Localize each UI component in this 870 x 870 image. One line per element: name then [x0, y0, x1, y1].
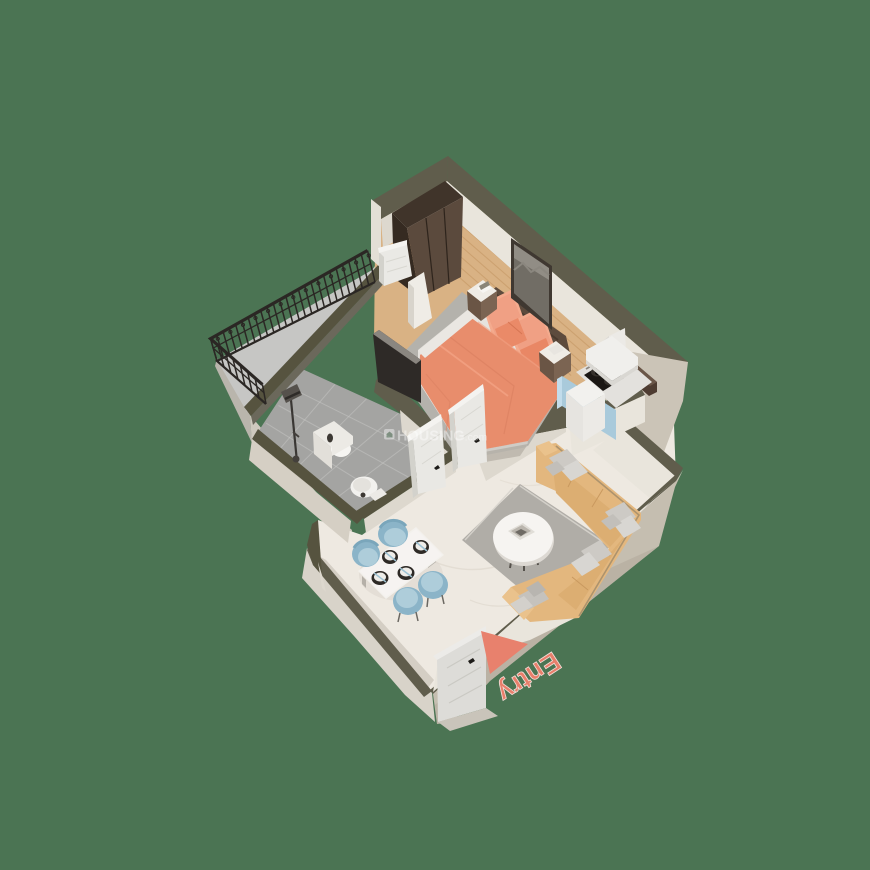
svg-text:HOUSING.com: HOUSING.com	[397, 429, 488, 445]
